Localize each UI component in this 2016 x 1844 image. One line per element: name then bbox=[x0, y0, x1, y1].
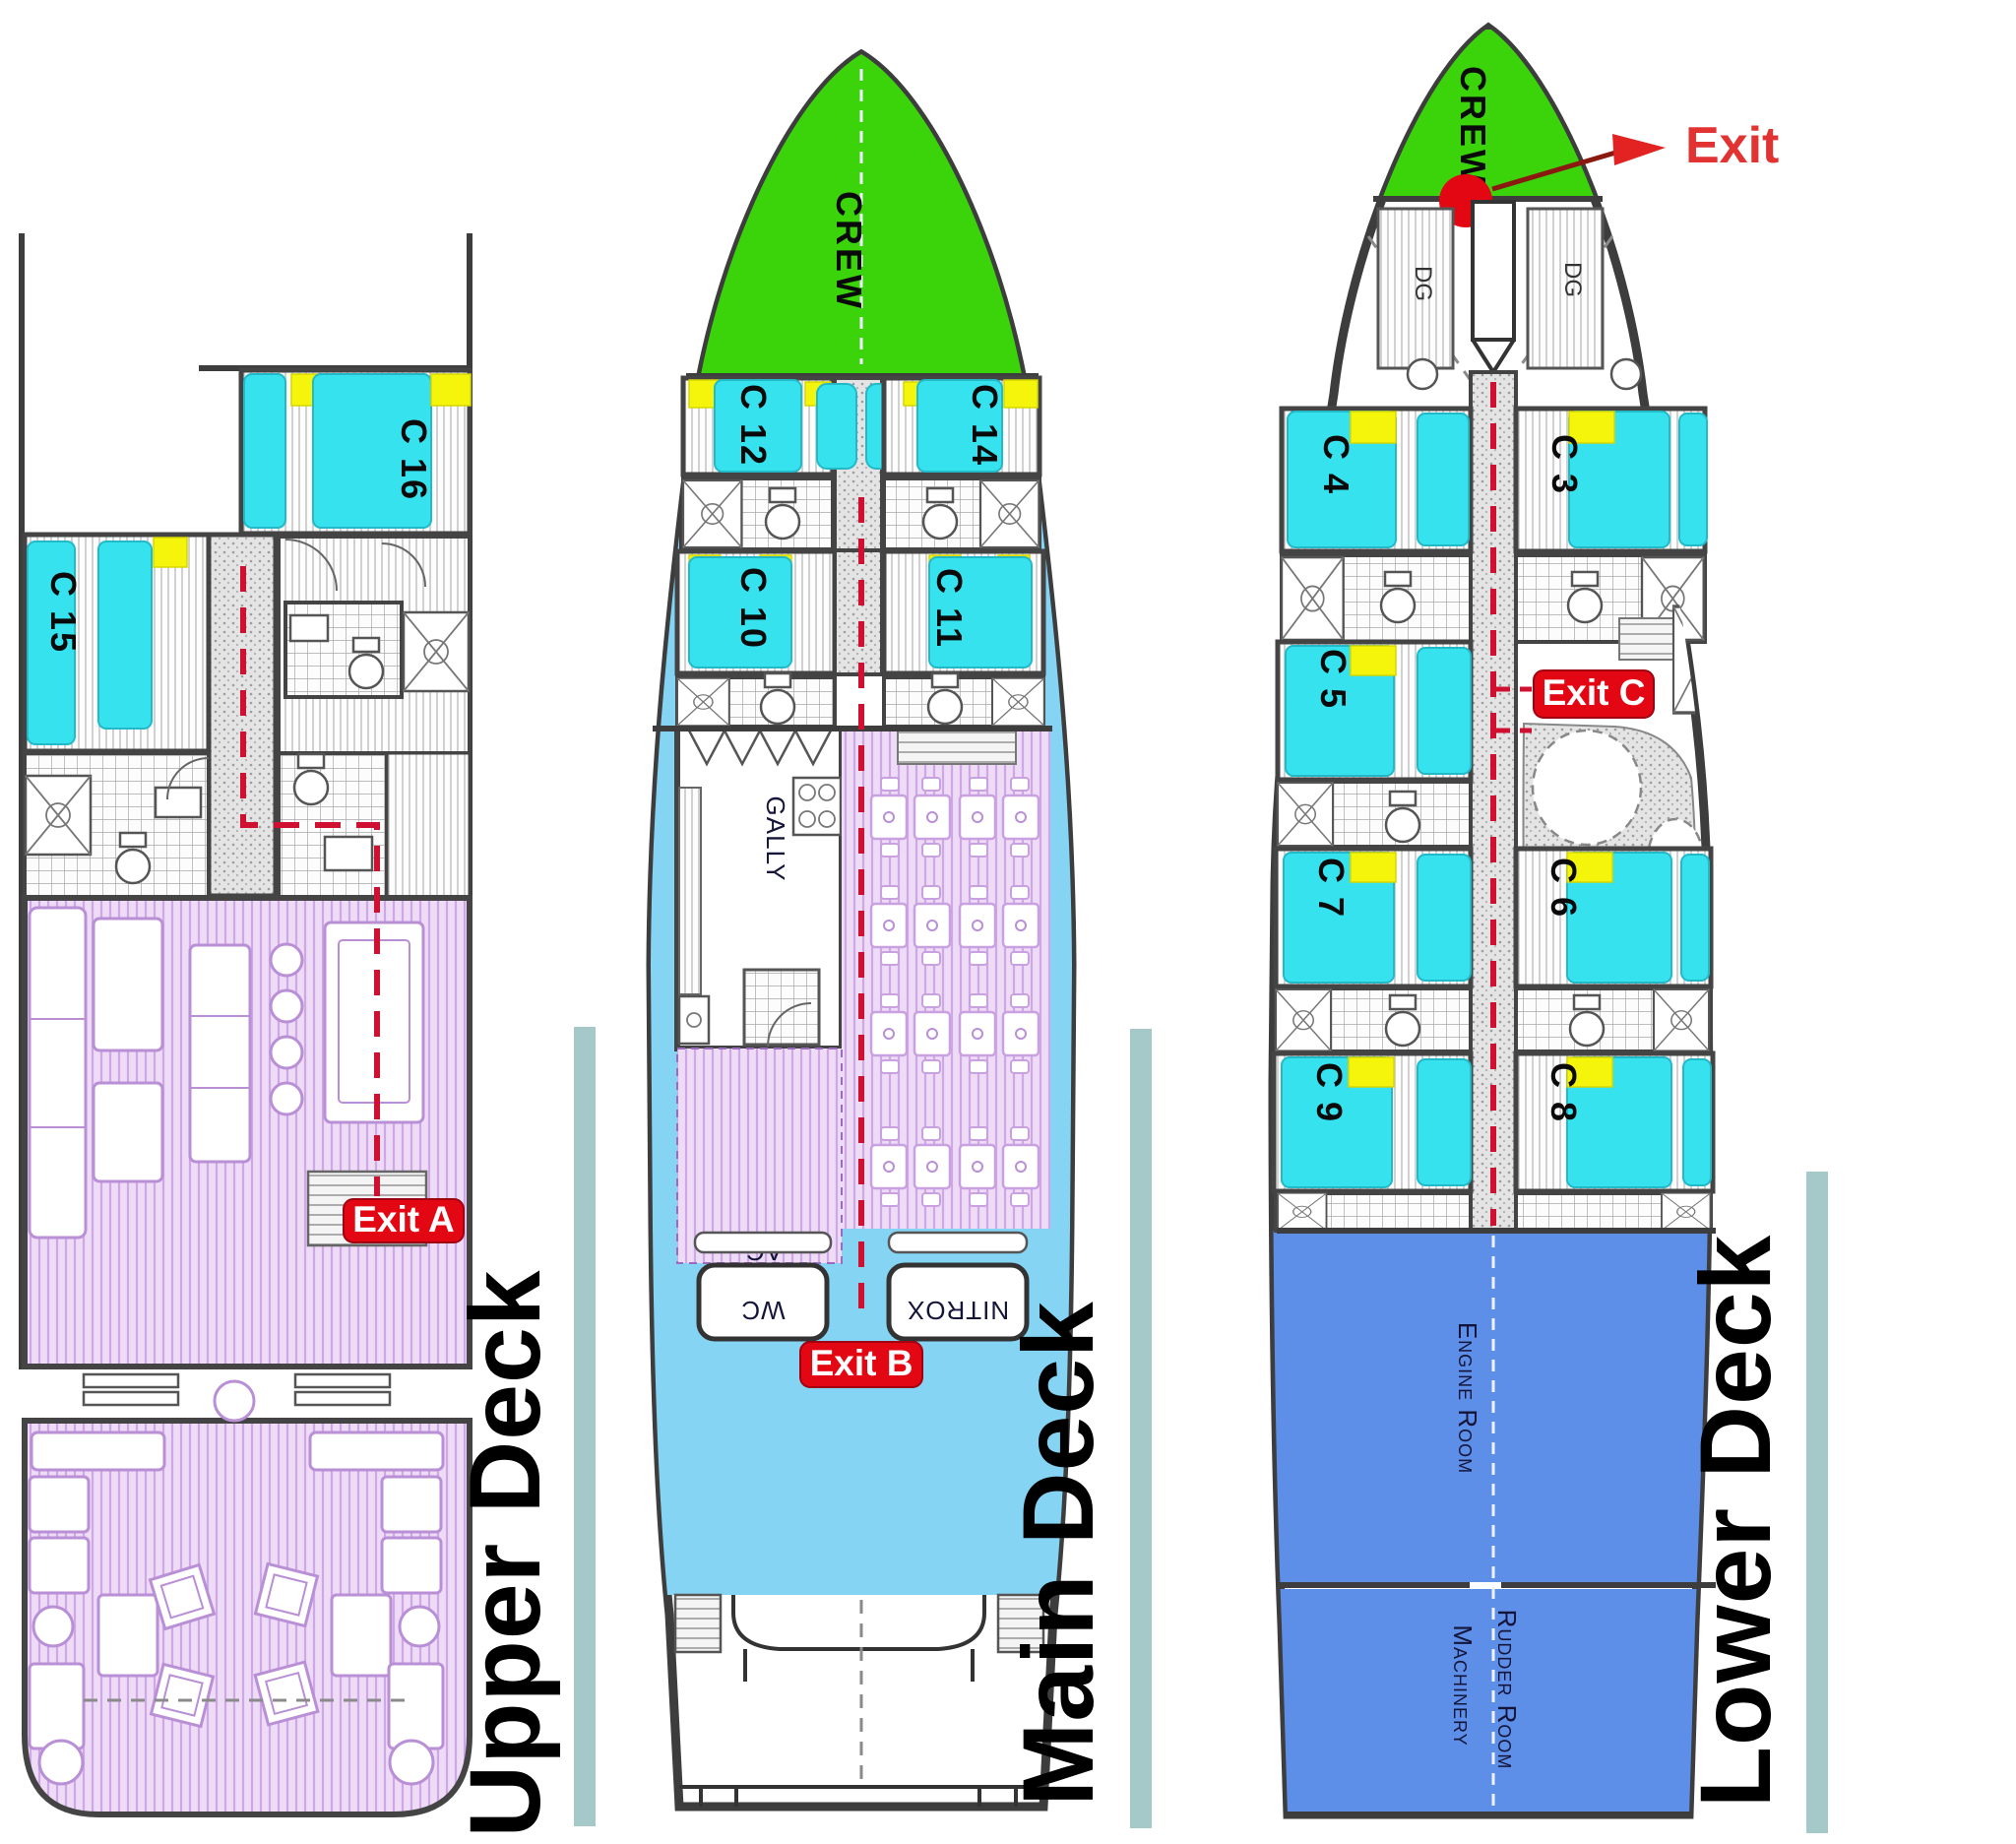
toilet bbox=[928, 673, 962, 724]
machinery-label: Machinery bbox=[1448, 1624, 1478, 1746]
shower-box bbox=[1276, 989, 1331, 1050]
sofa bbox=[30, 908, 86, 1238]
cabin-c3-label: C 3 bbox=[1544, 434, 1585, 495]
stern-steps bbox=[675, 1595, 721, 1652]
round-table bbox=[400, 1607, 439, 1646]
shower-box bbox=[1278, 1193, 1327, 1231]
stairs bbox=[898, 731, 1016, 764]
table bbox=[98, 1595, 157, 1676]
upper-bathroom-right bbox=[279, 537, 470, 898]
sink bbox=[1611, 359, 1641, 389]
cabin-c9: C 9 bbox=[1274, 1053, 1471, 1191]
lower-crew-label: CREW bbox=[1453, 66, 1493, 186]
lower-bath-rowB bbox=[1278, 782, 1471, 847]
bench bbox=[310, 1432, 443, 1470]
porthole bbox=[215, 1381, 254, 1421]
toilet bbox=[923, 488, 957, 539]
cabin-c16-label: C 16 bbox=[394, 418, 434, 501]
exit-arrow-head bbox=[1612, 134, 1666, 165]
door bbox=[84, 1392, 178, 1405]
toilet bbox=[1568, 572, 1602, 622]
door bbox=[84, 1374, 178, 1387]
exit-c-badge: Exit C bbox=[1534, 670, 1654, 718]
center-corridor bbox=[835, 550, 882, 674]
deck-plan-canvas: C 16 C 15 bbox=[0, 0, 2016, 1844]
bench bbox=[30, 1664, 84, 1749]
divider-bar bbox=[1806, 1172, 1828, 1833]
pillow bbox=[1351, 646, 1396, 675]
pillow bbox=[1004, 380, 1038, 408]
bed bbox=[98, 541, 152, 729]
bed bbox=[244, 374, 285, 528]
dining-area bbox=[842, 729, 1050, 1229]
upper-deck-plan: C 16 C 15 bbox=[22, 236, 471, 1814]
seat bbox=[382, 1477, 441, 1532]
exit-b-label: Exit B bbox=[810, 1343, 913, 1383]
exit-b-badge: Exit B bbox=[800, 1342, 922, 1387]
lower-deck-title: Lower Deck bbox=[1679, 1235, 1792, 1809]
round-table bbox=[390, 1741, 433, 1784]
wc-room: WC bbox=[695, 1233, 831, 1339]
pillow bbox=[431, 374, 471, 406]
cabin-c11: C 11 bbox=[884, 551, 1043, 673]
bed bbox=[1417, 855, 1471, 981]
door bbox=[295, 1374, 390, 1387]
cabin-c15-label: C 15 bbox=[43, 571, 84, 654]
round-table bbox=[39, 1741, 83, 1784]
shower-box bbox=[1282, 557, 1344, 640]
stool bbox=[271, 1037, 302, 1068]
shower-box bbox=[677, 678, 729, 726]
cabin-c9-label: C 9 bbox=[1309, 1062, 1350, 1123]
cabin-c12: C 12 bbox=[683, 378, 833, 475]
shower-box bbox=[683, 480, 741, 547]
cabin-c10-label: C 10 bbox=[733, 567, 774, 650]
toilet bbox=[294, 754, 328, 804]
upper-bathroom-left bbox=[25, 753, 209, 898]
exit-a-label: Exit A bbox=[352, 1199, 454, 1240]
cabin-c8-label: C 8 bbox=[1543, 1062, 1584, 1123]
upper-bow-step-wall bbox=[202, 236, 470, 368]
pillow bbox=[154, 538, 187, 567]
cabin-c5: C 5 bbox=[1278, 642, 1471, 780]
bench bbox=[31, 1432, 164, 1470]
stairs bbox=[1619, 618, 1674, 660]
cabin-c14-label: C 14 bbox=[965, 384, 1005, 467]
counter bbox=[679, 788, 701, 994]
bed bbox=[1417, 1059, 1471, 1185]
shower-box bbox=[1662, 1193, 1711, 1231]
bed bbox=[1679, 413, 1707, 545]
bench bbox=[389, 1664, 443, 1749]
dg-left-label: DG bbox=[1410, 266, 1436, 301]
stove-icon bbox=[793, 778, 841, 835]
engine-room bbox=[1265, 1231, 1718, 1582]
toilet bbox=[349, 638, 383, 688]
pantry bbox=[744, 970, 819, 1045]
sofa bbox=[94, 1083, 162, 1181]
seat bbox=[382, 1538, 441, 1593]
shelf bbox=[889, 1233, 1027, 1252]
cabin-c7: C 7 bbox=[1276, 849, 1471, 986]
shower-box bbox=[980, 480, 1039, 547]
shower-box bbox=[992, 678, 1044, 726]
pillow bbox=[1349, 1057, 1394, 1087]
cabin-c4-label: C 4 bbox=[1316, 434, 1356, 495]
machinery-room bbox=[1265, 1589, 1718, 1812]
round-table bbox=[33, 1607, 73, 1646]
bed bbox=[1417, 648, 1471, 774]
sink bbox=[156, 788, 201, 817]
galley: GALLY bbox=[677, 729, 842, 1049]
upper-lounge bbox=[25, 898, 470, 1367]
seat bbox=[30, 1538, 89, 1593]
engine-room-label: Engine Room bbox=[1453, 1322, 1482, 1474]
stool bbox=[271, 990, 302, 1022]
cabin-c6-label: C 6 bbox=[1543, 858, 1584, 919]
bed bbox=[1683, 1059, 1711, 1185]
cabin-c10: C 10 bbox=[677, 551, 835, 673]
shower-box bbox=[26, 776, 91, 855]
cabin-c12-label: C 12 bbox=[733, 384, 774, 467]
toilet bbox=[766, 488, 799, 539]
table bbox=[332, 1595, 391, 1676]
divider-bar bbox=[1130, 1029, 1152, 1828]
bar-cabinet bbox=[190, 945, 250, 1162]
wc-label: WC bbox=[740, 1296, 785, 1325]
toilet bbox=[116, 833, 150, 883]
rudder-room-label: Rudder Room bbox=[1492, 1610, 1522, 1770]
cabin-c5-label: C 5 bbox=[1313, 649, 1354, 710]
exit-c-label: Exit C bbox=[1543, 672, 1646, 713]
bed bbox=[817, 384, 856, 469]
stool bbox=[271, 944, 302, 976]
cabin-c16: C 16 bbox=[241, 370, 471, 534]
cabin-c15: C 15 bbox=[25, 535, 209, 751]
stool bbox=[271, 1083, 302, 1114]
cabin-c3: C 3 bbox=[1516, 409, 1707, 551]
upper-aft-lounge bbox=[25, 1421, 470, 1814]
toilet bbox=[1381, 572, 1415, 622]
sink bbox=[325, 837, 372, 870]
toilet bbox=[1570, 995, 1604, 1046]
main-deck-title: Main Deck bbox=[1002, 1301, 1114, 1807]
dg-right-label: DG bbox=[1559, 262, 1586, 297]
pillow bbox=[1351, 853, 1396, 882]
sink bbox=[679, 996, 709, 1044]
main-crew-label: CREW bbox=[829, 191, 869, 311]
stair-corridor bbox=[1473, 202, 1514, 340]
divider-bar bbox=[574, 1027, 596, 1826]
toilet bbox=[761, 673, 794, 724]
sofa bbox=[94, 919, 162, 1050]
cabin-c6: C 6 bbox=[1516, 849, 1711, 986]
cabin-c11-label: C 11 bbox=[929, 568, 970, 649]
nitrox-label: NITROX bbox=[907, 1296, 1009, 1325]
shelf bbox=[695, 1233, 831, 1252]
toilet bbox=[1386, 995, 1419, 1046]
sink bbox=[290, 615, 328, 641]
door bbox=[295, 1392, 390, 1405]
exit-a-badge: Exit A bbox=[344, 1199, 464, 1242]
seat bbox=[30, 1477, 89, 1532]
bed bbox=[1417, 413, 1469, 545]
sink bbox=[1408, 359, 1437, 389]
shower-box bbox=[1278, 783, 1333, 846]
cabin-c14: C 14 bbox=[884, 378, 1039, 475]
toilet bbox=[1386, 792, 1419, 842]
bed bbox=[1681, 855, 1709, 981]
shower-box bbox=[404, 612, 469, 691]
cabin-c8: C 8 bbox=[1516, 1053, 1713, 1191]
cabin-c4: C 4 bbox=[1282, 409, 1471, 551]
shower-box bbox=[1654, 989, 1709, 1050]
galley-label: GALLY bbox=[761, 796, 790, 882]
lounge-blob bbox=[1533, 731, 1641, 845]
upper-deck-title: Upper Deck bbox=[449, 1270, 561, 1838]
exit-top-label: Exit bbox=[1685, 117, 1779, 174]
cabin-c7-label: C 7 bbox=[1311, 858, 1352, 919]
